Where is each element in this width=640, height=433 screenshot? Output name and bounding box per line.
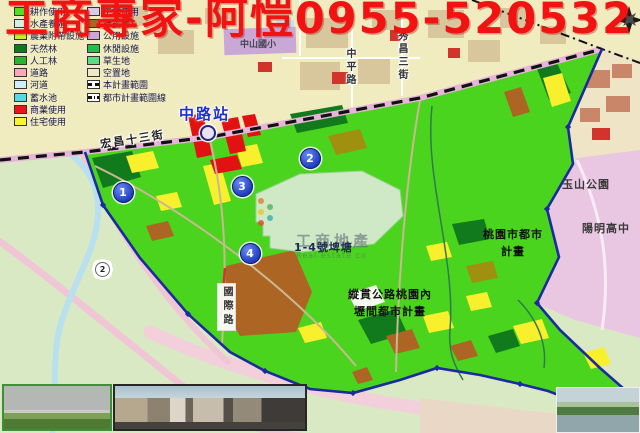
street-label-zhongping-rd: 中平路 — [342, 48, 357, 87]
station-label: 中路站 — [179, 103, 230, 124]
legend-item: 空置地 — [87, 66, 166, 78]
legend-dashdot-line-symbol — [87, 93, 100, 102]
legend-item: 都市計畫範圍線 — [87, 91, 166, 103]
legend-label: 道路 — [30, 66, 48, 79]
legend-label: 住宅使用 — [30, 115, 66, 128]
legend-item: 商業使用 — [14, 103, 84, 115]
legend-color-swatch — [14, 105, 27, 114]
photo-street-scene — [113, 384, 307, 431]
map-marker-2: 2 — [300, 148, 321, 169]
photo-river — [556, 387, 640, 433]
legend-color-swatch — [14, 44, 27, 53]
legend-label: 都市計畫範圍線 — [103, 91, 166, 104]
legend-color-swatch — [87, 68, 100, 77]
label-pond-1-4: 1-4號埤塘 — [294, 239, 353, 255]
legend-item: 河道 — [14, 79, 84, 91]
flyer-canvas: 耕作使用水產養殖農業附帶設施天然林人工林道路河道蓄水池商業使用住宅使用 工業使用… — [0, 0, 640, 433]
legend-item: 道路 — [14, 66, 84, 78]
legend-label: 空置地 — [103, 66, 130, 79]
map-marker-4: 4 — [240, 243, 261, 264]
legend-label: 草生地 — [103, 54, 130, 67]
label-yangming-highschool: 陽明高中 — [582, 220, 630, 236]
legend-item: 蓄水池 — [14, 91, 84, 103]
photo-field — [2, 384, 112, 431]
map-marker-3: 3 — [232, 176, 253, 197]
legend-item: 人工林 — [14, 54, 84, 66]
legend-color-swatch — [87, 44, 100, 53]
legend-color-swatch — [14, 117, 27, 126]
label-zongguan-highway-plan: 縱貫公路桃園內 壢間都市計畫 — [338, 287, 442, 320]
label-taoyuan-urban-plan: 桃園市都市 計畫 — [477, 227, 549, 260]
legend-item: 住宅使用 — [14, 116, 84, 128]
legend-dash-line-symbol — [87, 80, 100, 89]
label-yushan-park: 玉山公園 — [562, 176, 610, 192]
map-marker-1: 1 — [113, 182, 134, 203]
legend-color-swatch — [87, 56, 100, 65]
legend-label: 本計畫範圍 — [103, 78, 148, 91]
legend-color-swatch — [14, 80, 27, 89]
legend-label: 商業使用 — [30, 103, 66, 116]
legend-item: 本計畫範圍 — [87, 79, 166, 91]
headline-contact: 工商專家-阿愷0955-520532 — [5, 0, 634, 43]
legend-color-swatch — [14, 93, 27, 102]
legend-label: 蓄水池 — [30, 91, 57, 104]
legend-label: 河道 — [30, 78, 48, 91]
legend-label: 人工林 — [30, 54, 57, 67]
legend-item: 草生地 — [87, 54, 166, 66]
street-label-guoji-rd: 國際路 — [217, 283, 236, 331]
legend-color-swatch — [14, 68, 27, 77]
legend-color-swatch — [14, 56, 27, 65]
